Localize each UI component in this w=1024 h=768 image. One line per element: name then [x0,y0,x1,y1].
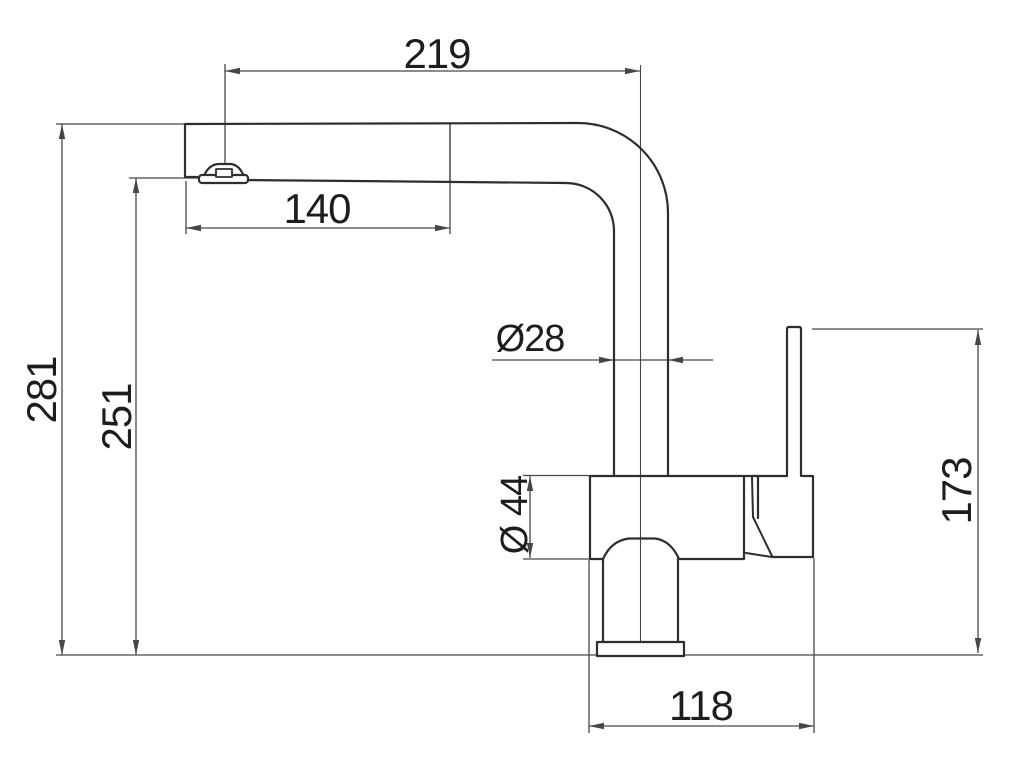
dim-label-tube-diameter: Ø28 [496,318,565,360]
technical-drawing-canvas: 219 140 281 251 Ø28 Ø 44 173 118 [0,0,1024,768]
faucet-outline [185,123,813,656]
arrow-251-top [133,178,139,193]
dim-label-aerator-offset: 140 [283,185,350,232]
arrow-281-bottom [59,640,65,655]
dimension-annotations [56,64,983,733]
dim-label-body-diameter: Ø 44 [494,475,536,554]
dimension-labels: 219 140 281 251 Ø28 Ø 44 173 118 [18,30,980,729]
dimension-arrowheads [59,68,981,729]
arrow-118-right [799,723,814,729]
handle-lever [787,327,801,476]
arrow-219-right [625,68,640,74]
faucet-dimension-drawing: 219 140 281 251 Ø28 Ø 44 173 118 [0,0,1024,768]
arrow-140-left [186,225,201,231]
dim-219-spout-reach-lines [225,64,640,163]
spout-outer-profile [185,123,668,475]
base-plate [597,642,684,656]
dim-label-spout-reach: 219 [403,30,470,77]
arrow-281-top [59,124,65,139]
arrow-219-left [225,68,240,74]
arrow-118-left [589,723,604,729]
dim-label-handle-height: 173 [933,457,980,524]
dim-label-base-width: 118 [669,682,733,729]
arrow-28-left [599,357,614,363]
arrow-251-bottom [133,640,139,655]
aerator-outlet [216,169,232,177]
arrow-173-top [975,330,981,345]
dim-label-outlet-height: 251 [93,383,140,450]
arrow-173-bottom [975,638,981,653]
arrow-140-right [435,225,450,231]
dim-label-total-height: 281 [18,356,65,423]
arrow-28-right [668,357,683,363]
